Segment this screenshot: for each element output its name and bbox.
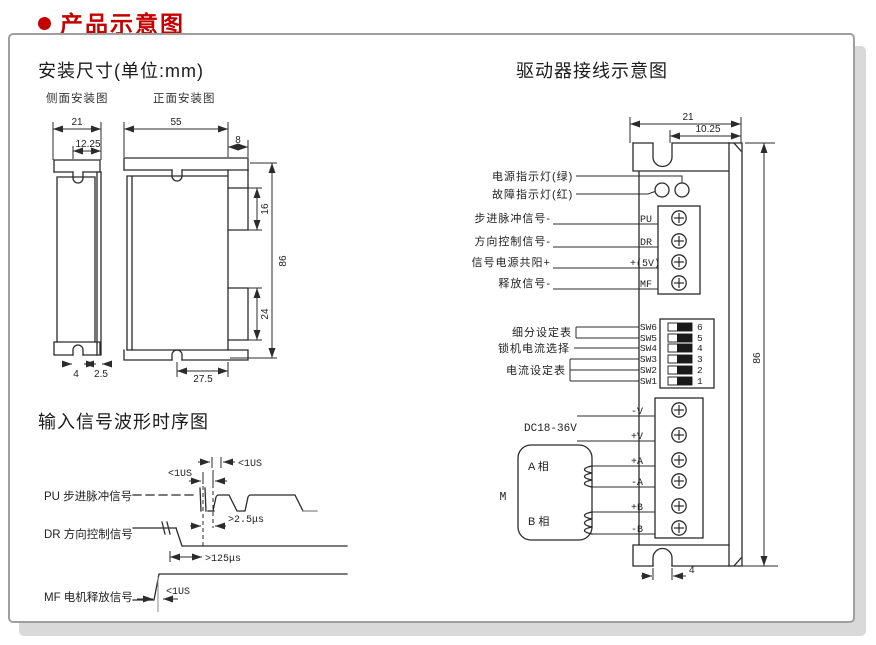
side-view-label: 侧面安装图 xyxy=(46,90,109,106)
pin-pu: PU xyxy=(640,215,652,226)
dip-switch-4: 4 xyxy=(668,343,703,354)
led-indicators: 电源指示灯(绿) 故障指示灯(红) xyxy=(492,169,689,201)
dr-signal: DR 方向控制信号 >2.5μs >125μs xyxy=(44,515,347,565)
dip-current-label: 电流设定表 xyxy=(506,363,566,377)
screw-terminal-icon xyxy=(672,403,686,417)
screw-terminal-icon xyxy=(672,453,686,467)
front-view-drawing: 55 8 16 24 86 27.5 xyxy=(124,117,289,385)
dip-lock-current-label: 锁机电流选择 xyxy=(498,341,570,355)
dip-switch-1: 1 xyxy=(668,376,703,387)
dim-side-slot: 12.25 xyxy=(75,139,100,150)
signal-terminal-block: 步进脉冲信号- 方向控制信号- 信号电源共阳+ 释放信号- PU DR +(5V… xyxy=(472,206,700,294)
bullet-icon xyxy=(38,17,51,30)
ann-pulse-width: <1US xyxy=(238,459,262,470)
dim-front-slot-offset: 27.5 xyxy=(193,374,213,385)
pin-neg-v: -V xyxy=(631,407,643,418)
sw6-label: SW6 xyxy=(640,322,657,333)
dip-num-6: 6 xyxy=(697,322,703,333)
screw-terminal-icon xyxy=(672,428,686,442)
driver-wiring-drawing: 21 10.25 86 4 xyxy=(486,110,788,588)
dip-switch-6: 6 xyxy=(668,322,703,333)
screw-terminal-icon xyxy=(672,255,686,269)
signal-label-direction: 方向控制信号- xyxy=(474,234,551,248)
pin-pos-a: +A xyxy=(631,457,643,468)
sw2-label: SW2 xyxy=(640,365,657,376)
dip-switch-block: 细分设定表 锁机电流选择 电流设定表 SW6 SW5 SW4 SW3 SW2 S… xyxy=(498,319,714,388)
driver-top-dimensions: 21 10.25 xyxy=(630,112,741,143)
led-red-label: 故障指示灯(红) xyxy=(492,187,573,201)
mounting-dimensions-drawing: 21 12.25 4 2.5 55 8 xyxy=(40,105,290,397)
side-view-drawing: 21 12.25 4 2.5 xyxy=(53,117,112,380)
screw-terminal-icon xyxy=(672,234,686,248)
dip-switch-3: 3 xyxy=(668,354,703,365)
ann-mf: <1US xyxy=(166,587,190,598)
dim-side-slot-width: 4 xyxy=(73,369,79,380)
driver-height-dimension: 86 xyxy=(730,143,778,566)
dip-num-1: 1 xyxy=(697,376,703,387)
power-supply-label: DC18-36V xyxy=(524,423,577,435)
ann-dir-setup: >2.5μs xyxy=(228,515,264,526)
signal-label-common: 信号电源共阳+ xyxy=(472,255,551,269)
phase-a-label: A 相 xyxy=(528,460,549,473)
signal-label-enable: 释放信号- xyxy=(498,276,551,290)
wiring-section-title: 驱动器接线示意图 xyxy=(516,57,668,83)
screw-terminal-icon xyxy=(672,474,686,488)
dim-side-width: 21 xyxy=(71,117,83,128)
screw-terminal-icon xyxy=(672,499,686,513)
dip-subdivision-label: 细分设定表 xyxy=(512,325,572,339)
signal-label-pulse: 步进脉冲信号- xyxy=(474,211,551,225)
dip-num-3: 3 xyxy=(697,354,703,365)
sw1-label: SW1 xyxy=(640,376,657,387)
screw-terminal-icon xyxy=(672,521,686,535)
pin-neg-b: -B xyxy=(631,525,643,536)
dim-driver-notch-offset: 10.25 xyxy=(695,124,720,135)
sw4-label: SW4 xyxy=(640,343,657,354)
mf-signal-label: MF 电机释放信号 xyxy=(44,590,133,604)
pin-5v: +(5V) xyxy=(630,258,660,270)
pin-dr: DR xyxy=(640,238,652,249)
dr-signal-label: DR 方向控制信号 xyxy=(44,527,133,541)
screw-terminal-icon xyxy=(672,276,686,290)
dim-front-tab-width: 8 xyxy=(235,135,241,146)
mf-signal: MF 电机释放信号 <1US xyxy=(44,574,347,612)
dim-driver-width: 21 xyxy=(682,112,694,123)
motor-label: M xyxy=(500,491,507,504)
dim-driver-slot: 4 xyxy=(689,565,695,576)
dip-num-4: 4 xyxy=(697,343,703,354)
pin-pos-b: +B xyxy=(631,503,643,514)
coil-a-icon xyxy=(585,466,593,487)
install-section-title: 安装尺寸(单位:mm) xyxy=(38,57,204,83)
ann-pulse-gap: <1US xyxy=(168,469,192,480)
waveform-timing-drawing: PU 步进脉冲信号 <1US <1US DR 方向控制信号 >2. xyxy=(38,448,368,618)
power-led-icon xyxy=(655,183,669,197)
dim-front-tab-bottom: 24 xyxy=(260,308,271,320)
screw-terminal-icon xyxy=(672,211,686,225)
dip-switch-2: 2 xyxy=(668,365,703,376)
pin-neg-a: -A xyxy=(631,478,643,489)
motor-drawing: M A 相 B 相 xyxy=(500,445,592,540)
led-green-label: 电源指示灯(绿) xyxy=(492,169,573,183)
power-terminal-block: -V +V +A -A +B -B DC18-36V xyxy=(524,398,703,538)
page: 产品示意图 安装尺寸(单位:mm) 驱动器接线示意图 输入信号波形时序图 侧面安… xyxy=(0,0,876,645)
pu-signal-label: PU 步进脉冲信号 xyxy=(44,489,132,503)
pin-mf: MF xyxy=(640,280,652,291)
dim-front-height: 86 xyxy=(278,255,289,267)
driver-slot-dimension: 4 xyxy=(641,565,695,580)
phase-b-label: B 相 xyxy=(528,515,549,528)
pin-pos-v: +V xyxy=(631,432,643,443)
front-view-label: 正面安装图 xyxy=(153,90,216,106)
dim-driver-height: 86 xyxy=(752,352,763,364)
waveform-section-title: 输入信号波形时序图 xyxy=(38,408,209,434)
dim-front-tab-top: 16 xyxy=(260,203,271,215)
sw3-label: SW3 xyxy=(640,354,657,365)
dim-side-plate: 2.5 xyxy=(94,369,108,380)
dim-front-width: 55 xyxy=(170,117,182,128)
dip-num-2: 2 xyxy=(697,365,703,376)
fault-led-icon xyxy=(675,183,689,197)
ann-dir-hold: >125μs xyxy=(205,554,241,565)
